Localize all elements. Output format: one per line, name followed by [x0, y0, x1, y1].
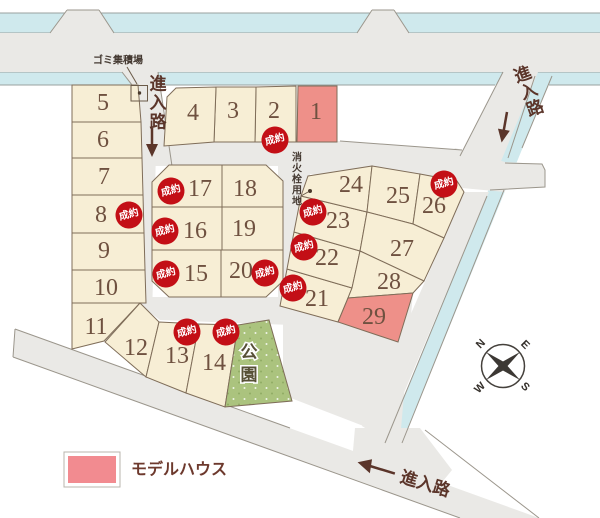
- lot-number-12: 12: [124, 335, 148, 361]
- lot-number-9: 9: [98, 238, 110, 264]
- lot-number-3: 3: [227, 98, 239, 124]
- lot-number-27: 27: [390, 236, 414, 262]
- lot-number-13: 13: [165, 343, 189, 369]
- compass-s: S: [518, 380, 532, 394]
- lot-number-23: 23: [326, 208, 350, 234]
- lot-number-2: 2: [268, 98, 280, 124]
- lot-number-5: 5: [97, 90, 109, 116]
- lot-number-21: 21: [305, 286, 329, 312]
- lot-number-4: 4: [187, 100, 199, 126]
- lot-number-28: 28: [377, 269, 401, 295]
- main-road-north: [0, 33, 600, 72]
- lot-number-22: 22: [315, 245, 339, 271]
- lot-number-8: 8: [95, 202, 107, 228]
- legend-swatch: [68, 456, 116, 483]
- park-char-1: 公: [241, 343, 258, 362]
- entry-west-char-1: 進: [150, 75, 167, 94]
- hydrant-char-2: 火: [292, 163, 303, 175]
- lot-number-10: 10: [94, 275, 118, 301]
- lot-number-16: 16: [183, 218, 207, 244]
- compass-w: W: [472, 380, 488, 396]
- lot-number-29: 29: [362, 304, 386, 330]
- garbage-site-dot: [138, 91, 141, 94]
- lot-number-24: 24: [339, 172, 363, 198]
- hydrant-char-1: 消: [292, 151, 302, 164]
- legend: モデルハウス: [64, 452, 227, 487]
- garbage-site-label: ゴミ集積場: [93, 54, 143, 67]
- lot-number-19: 19: [232, 216, 256, 242]
- map-canvas: 1 2 3 4 5 6 7 8 9 10 11 12 13 14 15 16 1…: [0, 0, 600, 518]
- entry-west-char-2: 入: [150, 94, 167, 113]
- hydrant-char-3: 栓: [292, 173, 302, 186]
- hydrant-char-5: 地: [292, 195, 302, 208]
- hydrant-dot: [308, 189, 312, 193]
- lot-number-15: 15: [184, 261, 208, 287]
- lot-number-17: 17: [188, 176, 212, 202]
- compass-n: N: [474, 337, 488, 351]
- legend-label: モデルハウス: [131, 460, 227, 479]
- lot-number-11: 11: [84, 314, 107, 340]
- lot-number-1: 1: [310, 99, 322, 125]
- hydrant-char-4: 用: [291, 185, 302, 197]
- lot-number-14: 14: [202, 350, 226, 376]
- compass: N E W S: [472, 337, 532, 396]
- lot-number-20: 20: [229, 258, 253, 284]
- lot-number-6: 6: [97, 127, 109, 153]
- subdivision-map: 1 2 3 4 5 6 7 8 9 10 11 12 13 14 15 16 1…: [0, 0, 600, 518]
- compass-e: E: [518, 338, 532, 352]
- park-char-2: 園: [241, 366, 258, 385]
- lot-number-18: 18: [233, 176, 257, 202]
- lot-number-7: 7: [98, 164, 110, 190]
- lot-number-25: 25: [386, 183, 410, 209]
